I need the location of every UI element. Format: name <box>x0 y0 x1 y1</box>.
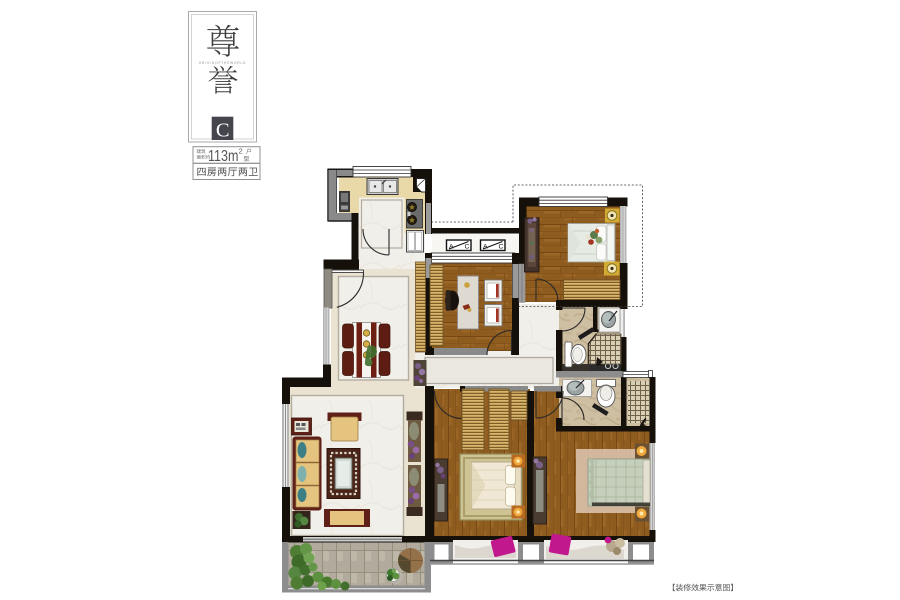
svg-text:2: 2 <box>239 147 243 156</box>
svg-text:113m: 113m <box>208 148 239 165</box>
svg-text:A: A <box>449 243 454 250</box>
svg-text:C: C <box>465 243 470 250</box>
svg-text:A: A <box>483 243 488 250</box>
svg-text:ORIGINOFTHEWORLD: ORIGINOFTHEWORLD <box>199 61 247 65</box>
svg-text:C: C <box>499 243 504 250</box>
svg-text:C: C <box>216 119 230 141</box>
